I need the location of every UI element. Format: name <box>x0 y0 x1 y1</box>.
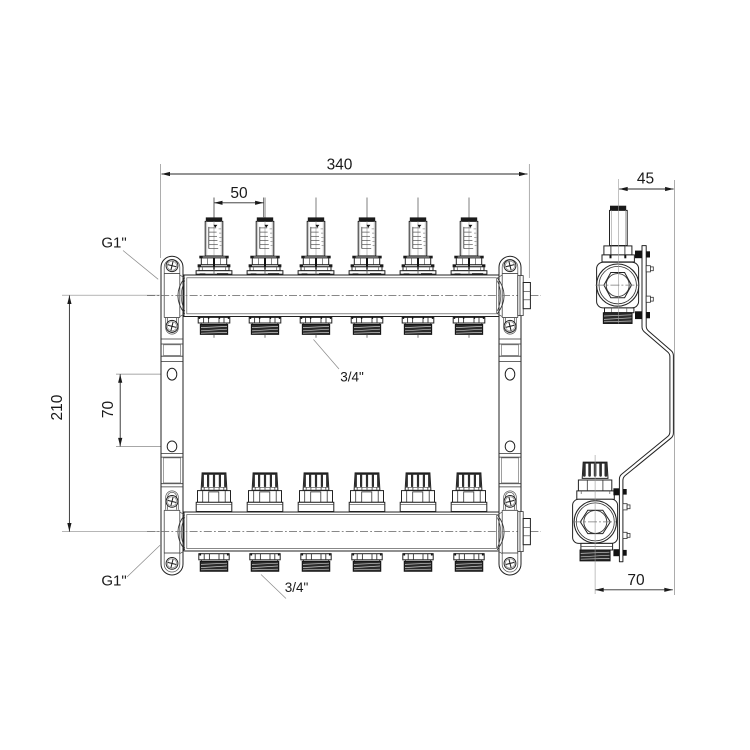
svg-text:45: 45 <box>637 171 654 188</box>
svg-text:G1": G1" <box>101 235 126 252</box>
svg-text:210: 210 <box>49 394 66 420</box>
svg-text:70: 70 <box>627 572 645 589</box>
svg-text:50: 50 <box>230 185 248 202</box>
svg-text:G1": G1" <box>101 573 126 590</box>
svg-text:340: 340 <box>327 157 353 174</box>
svg-text:70: 70 <box>100 401 117 419</box>
svg-text:3/4": 3/4" <box>340 370 364 385</box>
svg-text:3/4": 3/4" <box>285 580 309 595</box>
